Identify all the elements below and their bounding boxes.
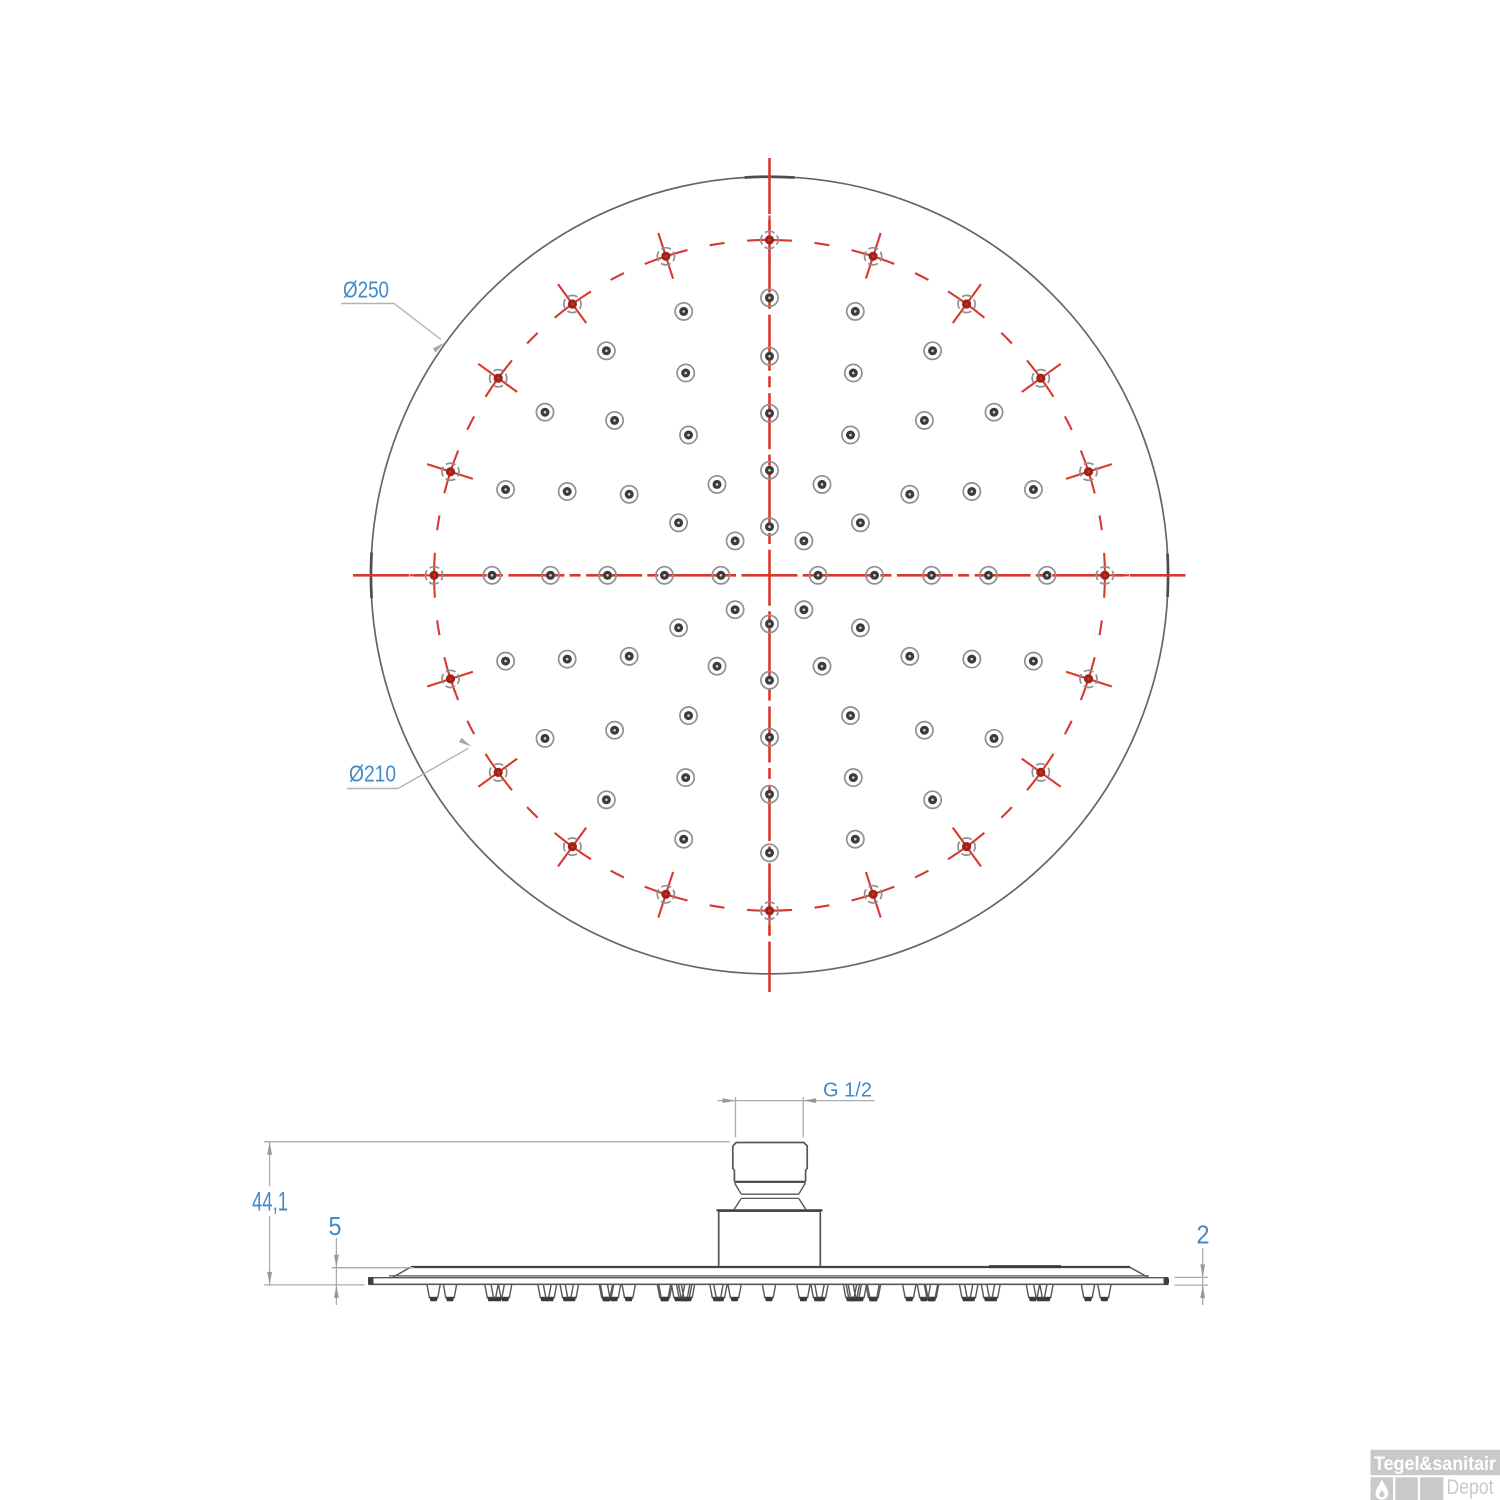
svg-text:Ø250: Ø250	[343, 277, 389, 303]
svg-text:Tegel&sanitair: Tegel&sanitair	[1374, 1453, 1496, 1475]
svg-text:44,1: 44,1	[252, 1187, 288, 1217]
svg-text:Ø210: Ø210	[349, 761, 396, 787]
svg-text:Depot: Depot	[1447, 1475, 1494, 1499]
svg-text:G 1/2: G 1/2	[823, 1079, 872, 1102]
svg-text:5: 5	[329, 1213, 342, 1241]
svg-text:2: 2	[1197, 1222, 1210, 1250]
